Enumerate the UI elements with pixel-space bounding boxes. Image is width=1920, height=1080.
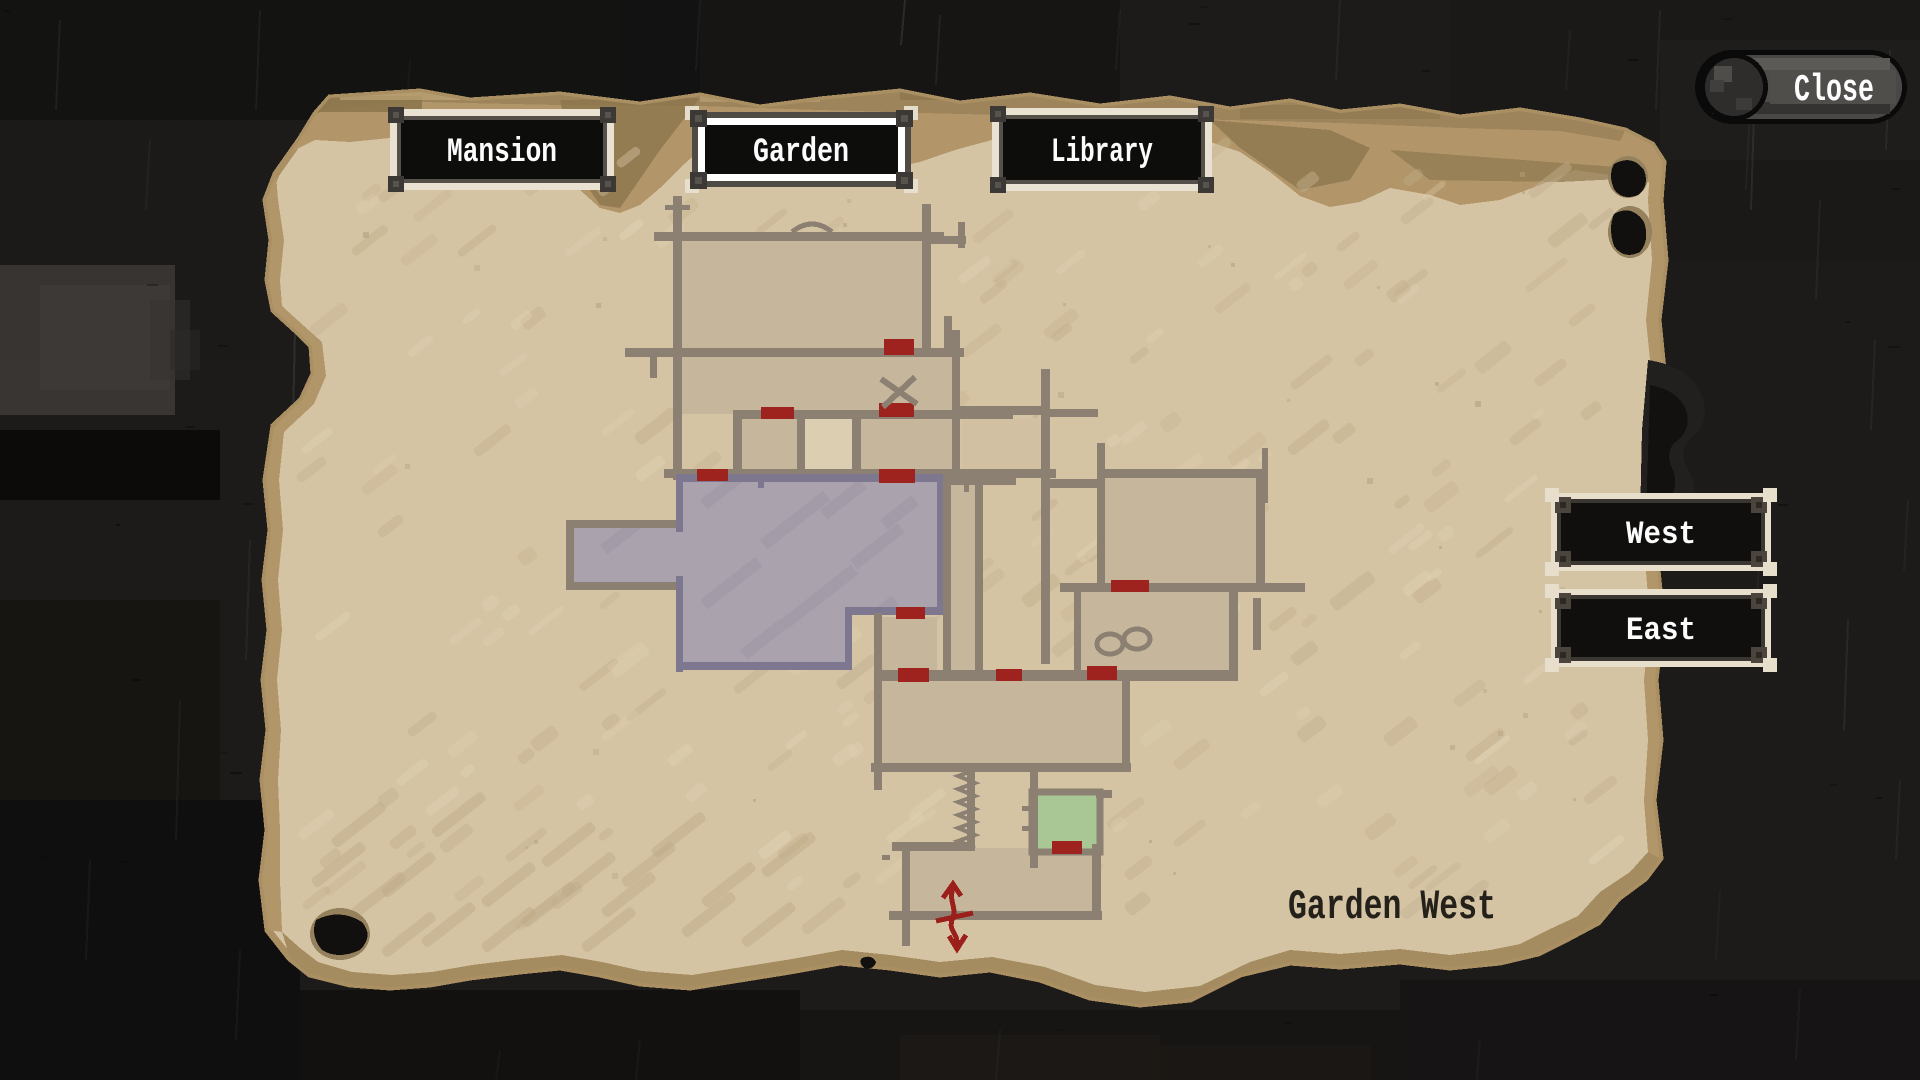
svg-text:Garden West: Garden West — [1288, 883, 1496, 931]
svg-text:Close: Close — [1794, 69, 1874, 112]
svg-text:Mansion: Mansion — [447, 134, 557, 172]
svg-text:West: West — [1626, 516, 1696, 553]
svg-text:Library: Library — [1051, 134, 1153, 172]
svg-text:Garden: Garden — [753, 134, 849, 172]
svg-text:East: East — [1626, 612, 1696, 649]
